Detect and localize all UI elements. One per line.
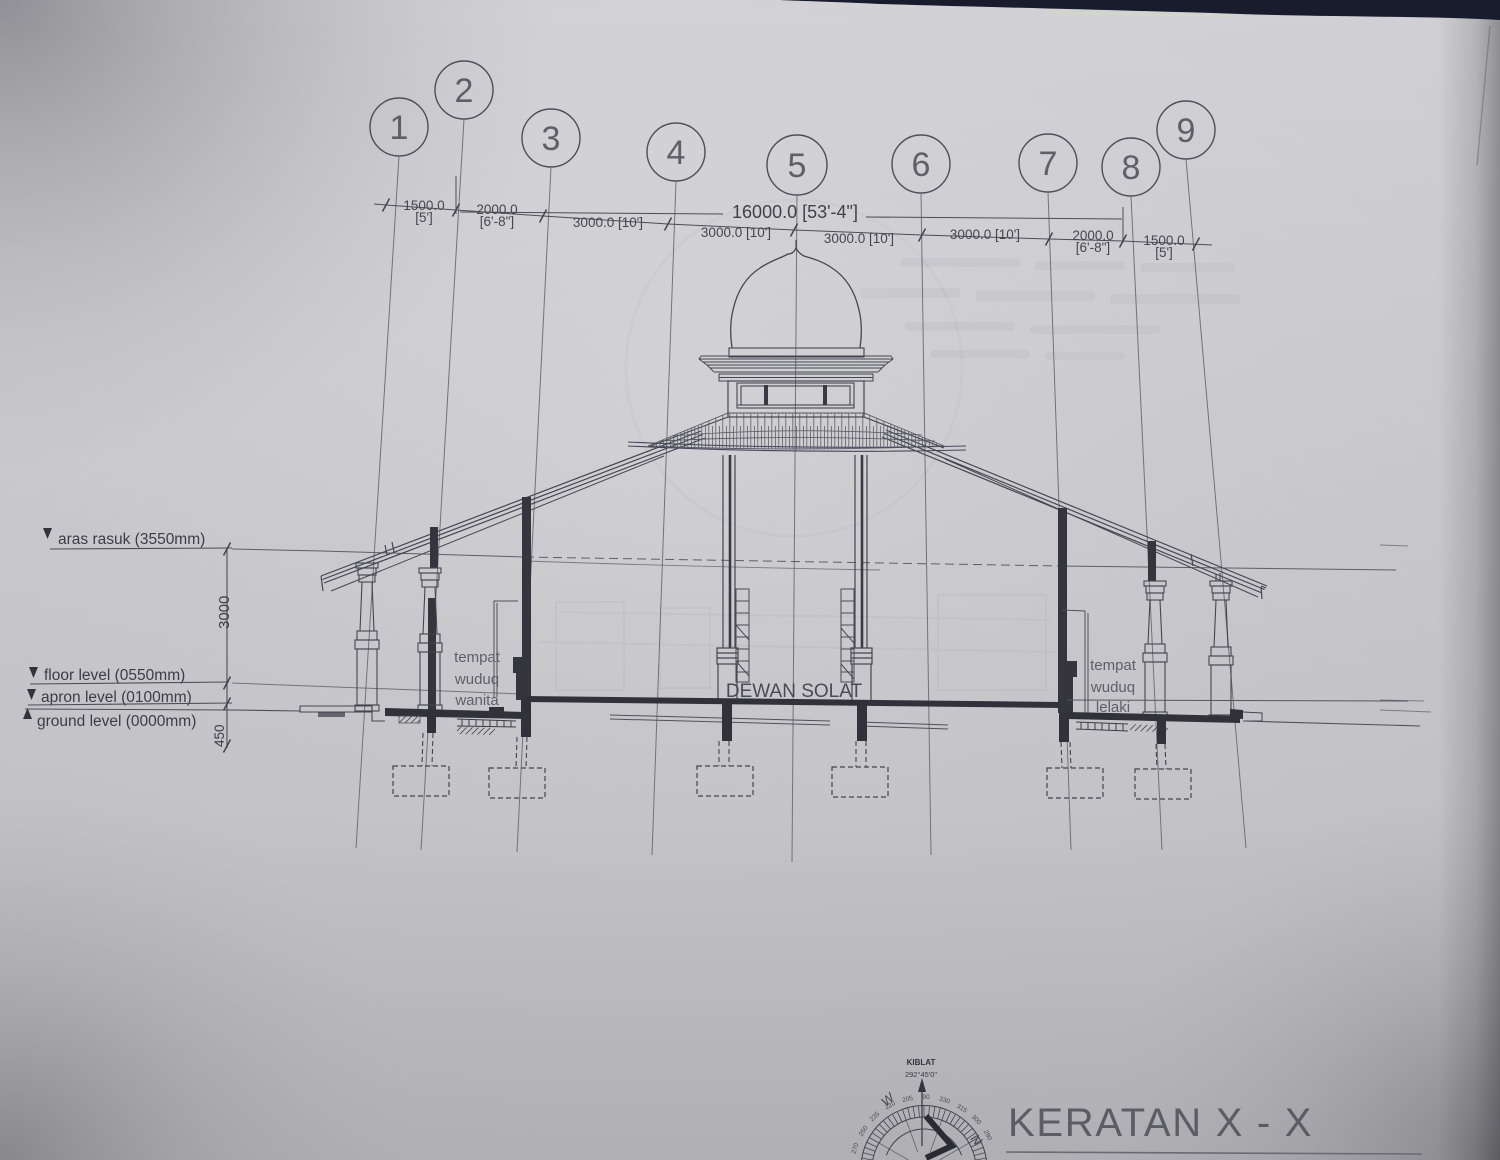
svg-text:floor level (0550mm): floor level (0550mm) [44,667,185,684]
svg-text:3000.0 [10']: 3000.0 [10'] [824,231,894,246]
svg-text:wuduq: wuduq [454,671,499,688]
svg-text:[6'-8"]: [6'-8"] [1076,240,1110,255]
svg-text:9: 9 [1177,112,1196,150]
svg-text:16000.0 [53'-4"]: 16000.0 [53'-4"] [732,202,858,222]
svg-text:3000: 3000 [216,596,233,629]
svg-text:ground level (0000mm): ground level (0000mm) [37,713,196,730]
svg-text:wanita: wanita [454,692,499,709]
svg-text:[5']: [5'] [1155,245,1173,260]
svg-text:4: 4 [667,134,686,172]
svg-text:KIBLAT: KIBLAT [907,1058,936,1067]
svg-text:2: 2 [455,72,474,110]
svg-text:[6'-8"]: [6'-8"] [480,214,514,229]
svg-text:6: 6 [912,146,931,184]
svg-text:450: 450 [212,724,227,747]
svg-text:wuduq: wuduq [1090,679,1135,696]
svg-text:90: 90 [922,1094,930,1101]
svg-text:3000.0 [10']: 3000.0 [10'] [573,215,643,230]
svg-text:3000.0 [10']: 3000.0 [10'] [950,227,1020,242]
svg-text:DEWAN SOLAT: DEWAN SOLAT [726,681,863,702]
svg-text:1: 1 [390,109,409,147]
svg-text:7: 7 [1039,145,1058,183]
svg-text:3000.0 [10']: 3000.0 [10'] [701,225,771,240]
svg-text:5: 5 [788,147,807,185]
svg-text:tempat: tempat [454,649,501,666]
svg-text:tempat: tempat [1090,657,1137,674]
svg-text:lelaki: lelaki [1096,699,1130,716]
svg-text:292°45'0": 292°45'0" [905,1070,937,1079]
svg-text:3: 3 [542,120,561,158]
svg-text:8: 8 [1122,149,1141,187]
svg-text:[5']: [5'] [415,210,433,225]
svg-text:aras rasuk (3550mm): aras rasuk (3550mm) [58,531,205,548]
svg-text:KERATAN X - X: KERATAN X - X [1008,1101,1313,1145]
